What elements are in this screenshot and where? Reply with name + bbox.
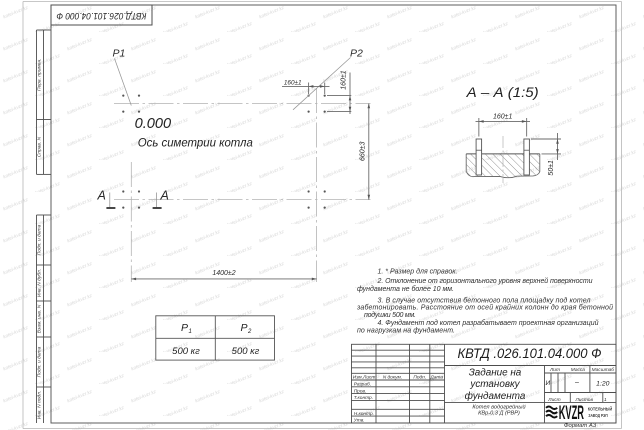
svg-text:1: 1 [604,397,607,403]
svg-text:Лит: Лит [549,367,560,373]
svg-text:Утв.: Утв. [354,418,365,424]
svg-text:2. Отклонение от горизонтально: 2. Отклонение от горизонтального уровня … [377,277,593,285]
svg-text:Инв. N дубл.: Инв. N дубл. [37,269,43,297]
svg-text:Н.контр.: Н.контр. [354,411,374,417]
svg-text:по нагрузкам на фундамент.: по нагрузкам на фундамент. [357,327,455,335]
svg-text:А: А [97,188,106,202]
svg-text:ЗАВОД РЭП: ЗАВОД РЭП [588,413,607,418]
svg-text:фундамента не более 10 мм.: фундамента не более 10 мм. [357,285,454,293]
svg-text:Пров.: Пров. [354,388,367,394]
svg-text:160±1: 160±1 [284,79,302,86]
svg-text:Масштаб: Масштаб [592,367,615,373]
svg-text:KVZR: KVZR [559,403,584,424]
svg-text:Взам. инв. N: Взам. инв. N [37,304,43,333]
svg-text:А – А (1:5): А – А (1:5) [466,85,539,100]
svg-text:1400±2: 1400±2 [212,270,235,277]
svg-text:КВТД .026.101.04.000 Ф: КВТД .026.101.04.000 Ф [458,346,602,361]
svg-text:1. * Размер для справок.: 1. * Размер для справок. [378,267,458,275]
svg-text:1: 1 [189,329,192,335]
svg-text:Справ. N: Справ. N [37,136,43,157]
svg-text:500 кг: 500 кг [172,346,200,357]
svg-text:–: – [574,380,579,387]
svg-text:Перв. примен.: Перв. примен. [37,58,43,91]
svg-text:P2: P2 [350,48,363,60]
svg-text:660±3: 660±3 [360,141,367,161]
svg-text:2: 2 [247,329,252,335]
svg-text:P1: P1 [113,48,126,60]
svg-text:И: И [545,380,550,387]
svg-text:Инв. N подл.: Инв. N подл. [37,391,43,420]
svg-text:Изм.Лист: Изм.Лист [353,374,376,380]
svg-text:50±1: 50±1 [548,160,555,176]
svg-text:N докум.: N докум. [383,374,402,380]
svg-text:P: P [241,322,248,334]
svg-text:Котел водогрейный: Котел водогрейный [472,404,525,411]
svg-text:Масса: Масса [571,367,586,373]
svg-text:Ось симетрии котла: Ось симетрии котла [138,135,253,149]
svg-text:0.000: 0.000 [135,116,172,132]
svg-text:Лист: Лист [547,397,560,403]
svg-text:4. Фундамент под котел разраба: 4. Фундамент под котел разрабатывает про… [378,319,599,327]
svg-text:Формат А3: Формат А3 [564,423,597,429]
svg-text:500 кг: 500 кг [232,346,260,357]
svg-text:Дата: Дата [429,374,443,380]
svg-text:Разраб.: Разраб. [354,382,371,388]
svg-text:установку: установку [469,379,520,390]
svg-text:Листов: Листов [575,397,594,403]
svg-text:КВр-0,3 Д (РВР): КВр-0,3 Д (РВР) [478,411,520,417]
svg-text:КОТЕЛЬНЫЙ: КОТЕЛЬНЫЙ [588,406,613,411]
svg-text:фундамента: фундамента [465,391,526,402]
svg-text:Подп.: Подп. [413,374,426,380]
svg-text:Подп. и дата: Подп. и дата [37,224,43,255]
svg-text:160±1: 160±1 [341,70,348,90]
svg-text:А: А [160,188,169,202]
svg-text:подушки 500 мм.: подушки 500 мм. [364,311,416,319]
svg-text:Подп. и дата: Подп. и дата [37,346,43,377]
svg-text:1:20: 1:20 [596,380,609,387]
svg-text:КВТД.026.101.04.000 Ф: КВТД.026.101.04.000 Ф [57,11,147,21]
svg-text:Т.контр.: Т.контр. [354,395,373,401]
svg-text:3. В случае отсутствия бетонно: 3. В случае отсутствия бетонного пола пл… [378,296,591,304]
svg-text:P: P [181,322,188,334]
svg-text:160±1: 160±1 [493,114,513,121]
svg-text:забетонировать. Расстояние от: забетонировать. Расстояние от осей крайн… [356,304,613,312]
svg-text:Задание на: Задание на [469,367,522,378]
